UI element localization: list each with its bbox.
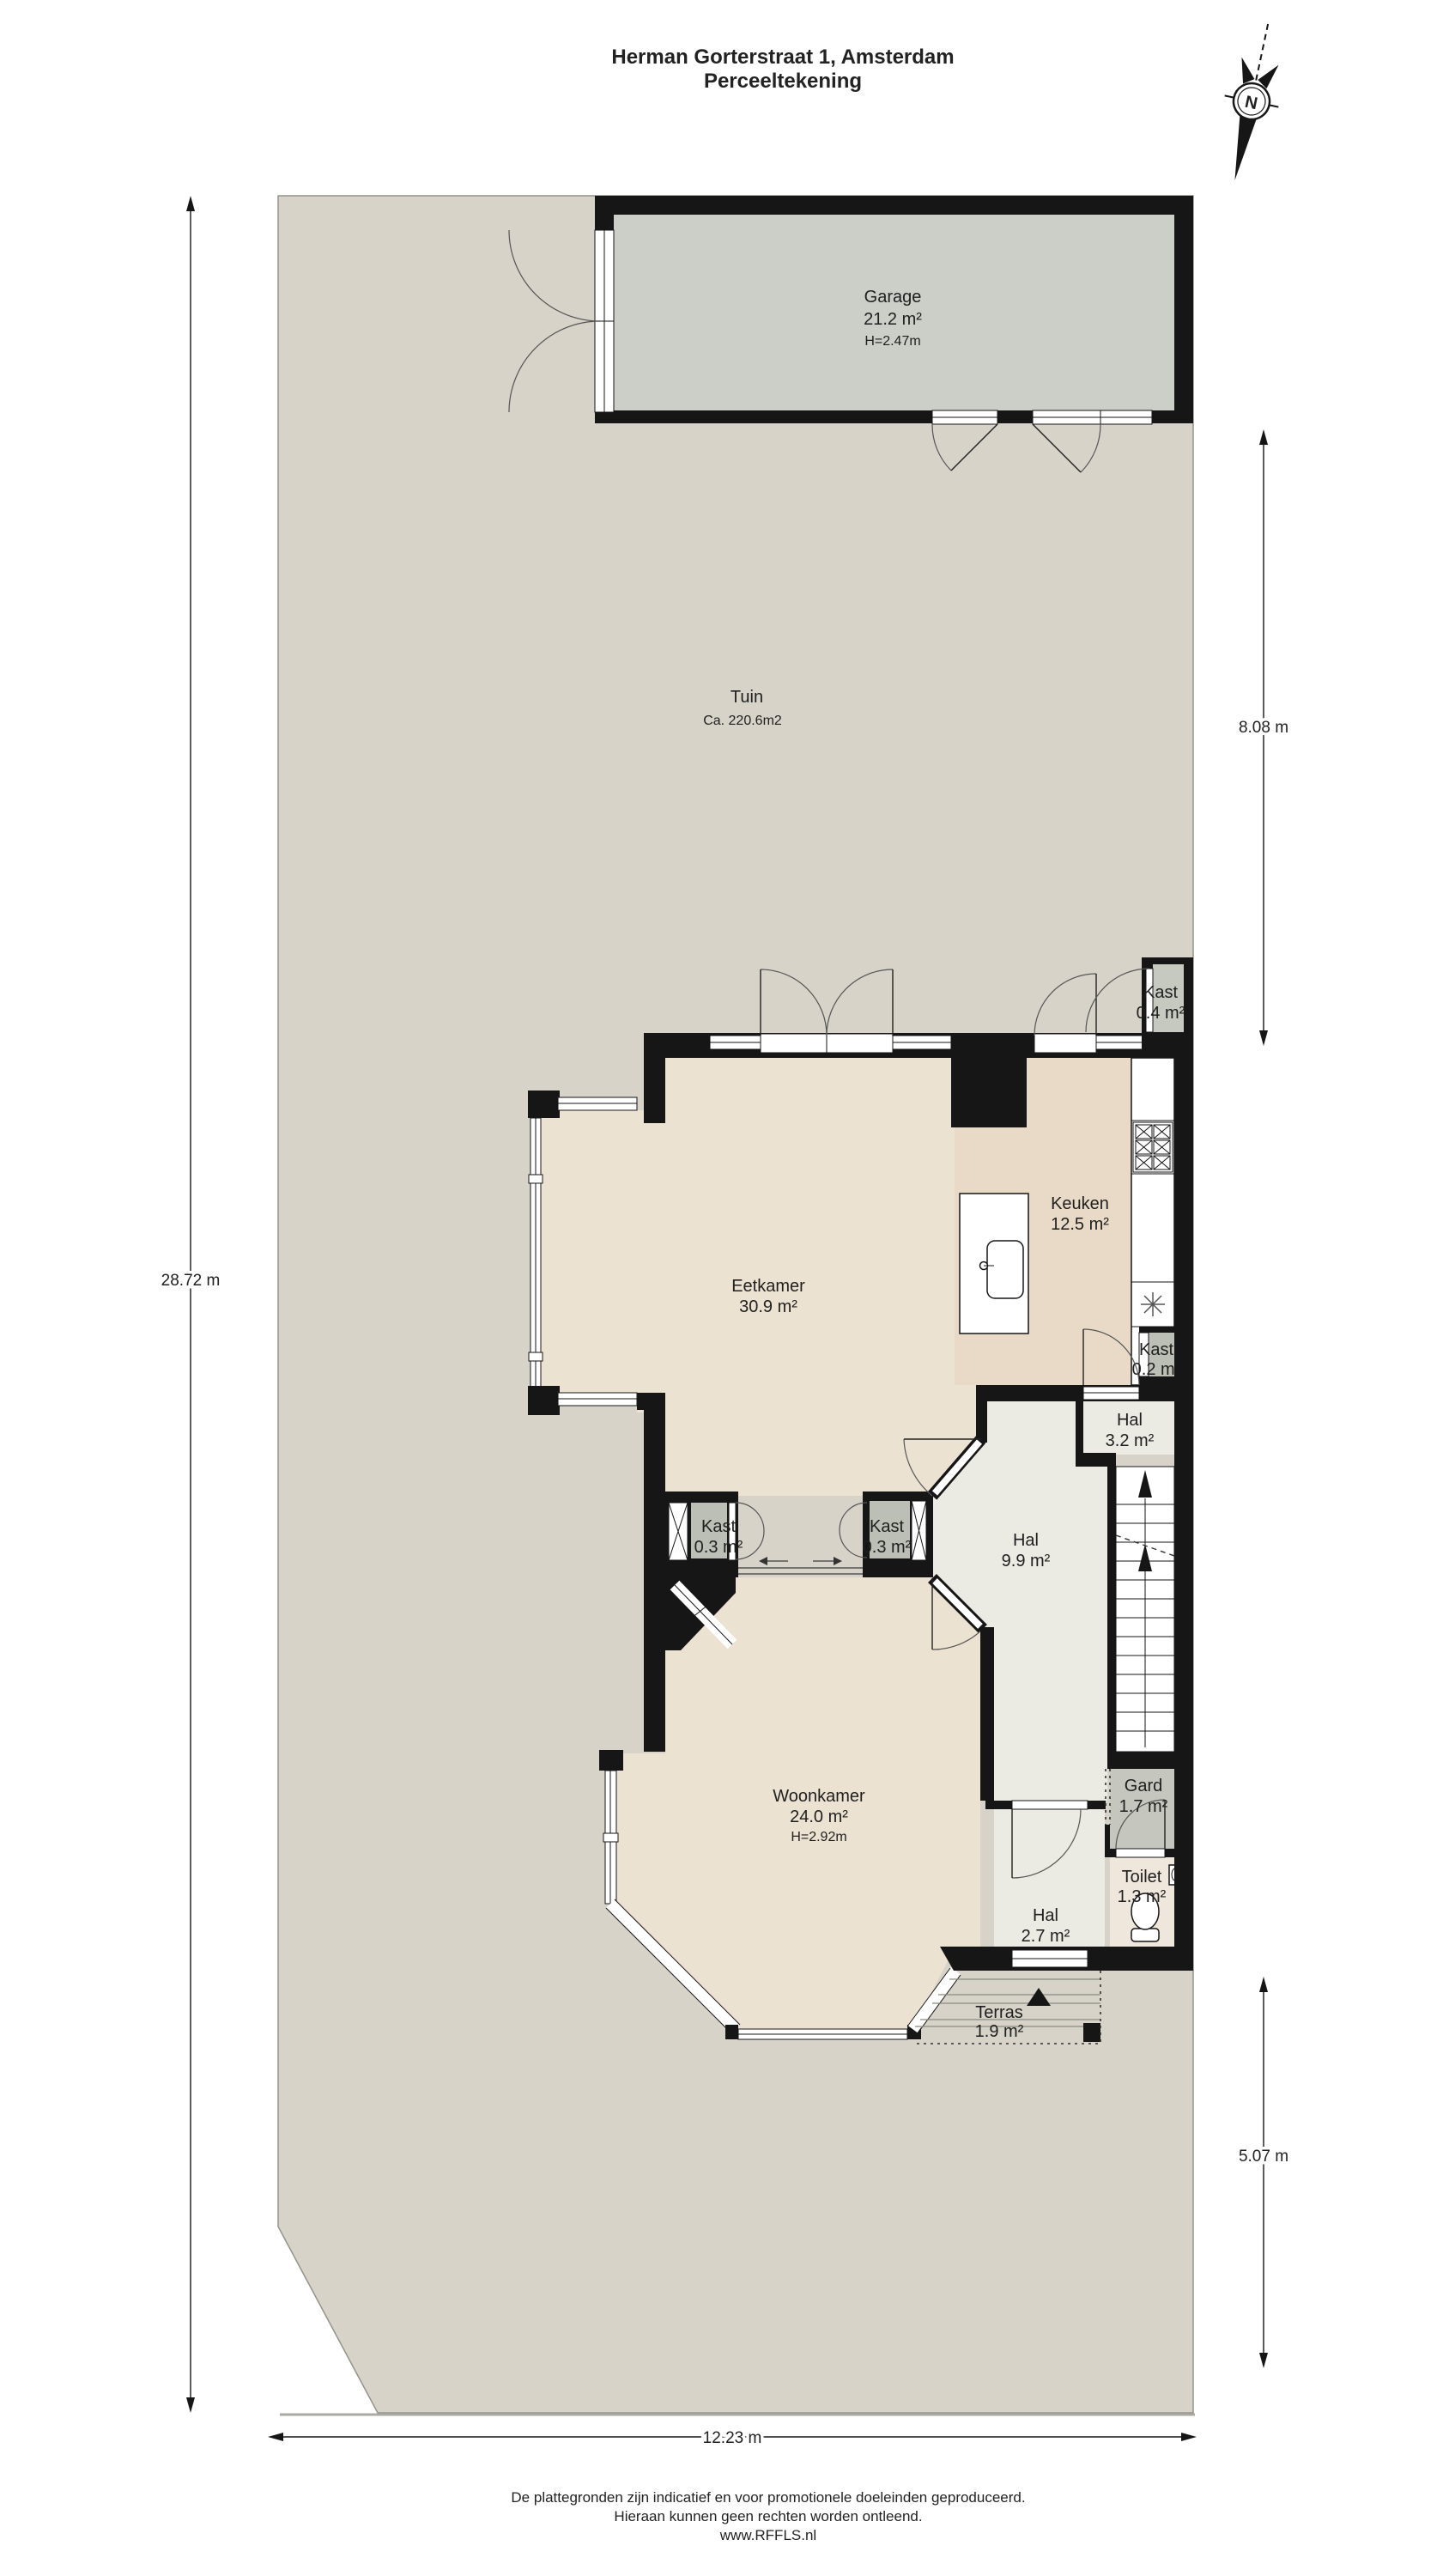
garage-height: H=2.47m <box>864 334 920 349</box>
kast-links-area: 0.3 m² <box>694 1538 743 1557</box>
compass-icon: N <box>1208 18 1294 185</box>
kast-midden-label: Kast <box>870 1517 904 1536</box>
kast-tuin-label: Kast <box>1143 983 1178 1002</box>
eetkamer-area: 30.9 m² <box>739 1297 797 1316</box>
keuken-area: 12.5 m² <box>1051 1215 1109 1234</box>
dimension-bottom: 12.23 m <box>268 2429 1197 2447</box>
hal-boven-area: 3.2 m² <box>1106 1431 1155 1450</box>
gard-area: 1.7 m² <box>1119 1797 1168 1816</box>
kast-midden-area: 0.3 m² <box>863 1538 912 1557</box>
dimension-bottom-label: 12.23 m <box>703 2429 762 2447</box>
stairs-left-wall <box>1107 1467 1116 1752</box>
wbay-mullion <box>603 1833 618 1842</box>
bay-corner-bottom <box>528 1386 560 1415</box>
sink <box>987 1241 1023 1298</box>
dimension-right-top-label: 8.08 m <box>1239 719 1288 737</box>
keuken-garden-door <box>1034 1034 1096 1053</box>
toilet-area: 1.3 m² <box>1118 1887 1167 1906</box>
tuin-label: Tuin <box>731 688 763 707</box>
garage-area: 21.2 m² <box>864 310 922 329</box>
hal-boven-left-wall <box>1076 1385 1083 1460</box>
gard-door-opening <box>1116 1849 1165 1857</box>
footer-line2: Hieraan kunnen geen rechten worden ontle… <box>614 2508 922 2524</box>
floorplan-page: Garage 21.2 m² H=2.47m Tuin Ca. 220.6m2 <box>0 0 1449 2576</box>
freezer-icon <box>1141 1292 1165 1316</box>
woonkamer-hal-wall <box>980 1627 994 1801</box>
hal-entree-label: Hal <box>1033 1906 1058 1925</box>
south-wall <box>980 1947 1193 1971</box>
dimension-right-top: 8.08 m <box>1239 429 1288 1046</box>
woonkamer-area: 24.0 m² <box>790 1807 848 1826</box>
hal-entree-floor <box>994 1809 1105 1947</box>
garage-label: Garage <box>864 288 922 307</box>
terras-corner-block <box>1083 2023 1100 2042</box>
nw-corner-block <box>644 1033 665 1123</box>
floorplan-drawing: Garage 21.2 m² H=2.47m Tuin Ca. 220.6m2 <box>0 0 1449 2576</box>
hal-boven-bottom-wall <box>1076 1453 1116 1467</box>
toilet-label: Toilet <box>1122 1868 1162 1886</box>
east-wall <box>1174 1033 1193 1971</box>
west-wall <box>644 1398 665 1752</box>
gard-left-wall <box>1105 1825 1110 1849</box>
hal-label: Hal <box>1013 1531 1039 1550</box>
terras-area: 1.9 m² <box>975 2022 1024 2041</box>
page-title: Herman Gorterstraat 1, Amsterdam <box>611 46 954 69</box>
eetkamer-label: Eetkamer <box>731 1277 805 1296</box>
hal-entree-area: 2.7 m² <box>1022 1927 1070 1946</box>
dimension-left-label: 28.72 m <box>161 1272 221 1290</box>
page-subtitle: Perceeltekening <box>704 70 862 93</box>
tuin-area: Ca. 220.6m2 <box>703 714 782 728</box>
woonkamer-label: Woonkamer <box>773 1787 865 1806</box>
kast-keuken-area: 0.2 m² <box>1132 1360 1181 1379</box>
gard-label: Gard <box>1125 1777 1162 1795</box>
hal-top-stub <box>976 1385 987 1443</box>
hal-entree-top-door <box>1012 1801 1088 1809</box>
wbay-corner-bl <box>725 2025 738 2039</box>
dimension-right-bottom-label: 5.07 m <box>1239 2148 1288 2166</box>
wbay-corner-top <box>599 1750 623 1771</box>
kast-links-label: Kast <box>701 1517 736 1536</box>
bay-corner-top <box>528 1091 560 1118</box>
north-pier <box>951 1033 1027 1127</box>
footer-line1: De plattegronden zijn indicatief en voor… <box>511 2489 1025 2506</box>
bay-mullion-2 <box>529 1352 543 1361</box>
dimension-right-bottom: 5.07 m <box>1239 1977 1288 2368</box>
bay-mullion-1 <box>529 1175 543 1183</box>
footer-line3: www.RFFLS.nl <box>719 2527 816 2543</box>
dimension-left: 28.72 m <box>161 196 221 2413</box>
keuken-label: Keuken <box>1051 1194 1109 1213</box>
kast-keuken-label: Kast <box>1139 1340 1173 1359</box>
hal-area: 9.9 m² <box>1002 1552 1051 1571</box>
woonkamer-height: H=2.92m <box>791 1830 846 1844</box>
hal-boven-label: Hal <box>1117 1411 1143 1430</box>
kast-tuin-area: 0.4 m² <box>1137 1004 1185 1023</box>
terras-label: Terras <box>975 2003 1023 2022</box>
